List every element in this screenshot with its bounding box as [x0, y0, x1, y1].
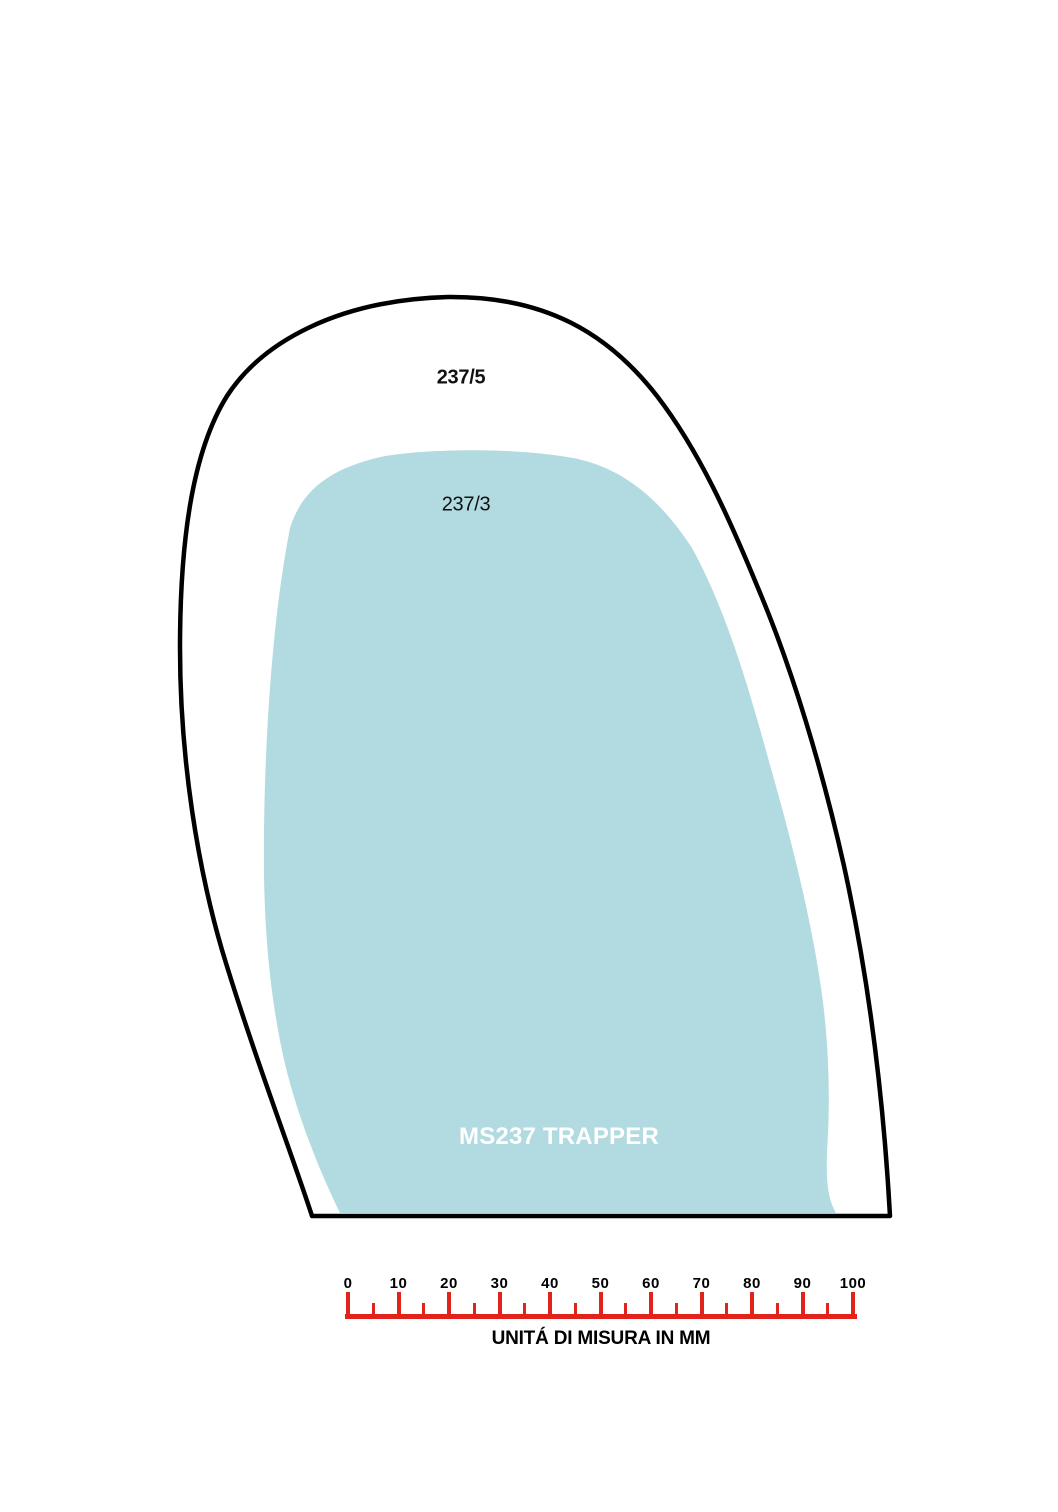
ruler-number: 40	[541, 1275, 559, 1292]
ruler-minor-tick	[422, 1303, 425, 1317]
ruler-major-tick	[498, 1292, 502, 1317]
ruler-major-tick	[851, 1292, 855, 1317]
ruler-minor-tick	[826, 1303, 829, 1317]
outer-part-label: 237/5	[437, 367, 486, 390]
ruler-number: 20	[440, 1275, 458, 1292]
ruler-major-tick	[447, 1292, 451, 1317]
ruler-major-tick	[548, 1292, 552, 1317]
ruler-labels: 0102030405060708090100	[348, 1272, 854, 1293]
inner-part-label: 237/3	[442, 494, 491, 517]
ruler-major-tick	[649, 1292, 653, 1317]
ruler-number: 0	[344, 1275, 353, 1292]
model-name-label: MS237 TRAPPER	[459, 1123, 659, 1151]
mm-ruler: 0102030405060708090100 UNITÁ DI MISURA I…	[348, 1272, 854, 1350]
ruler-number: 90	[794, 1275, 812, 1292]
ruler-major-tick	[801, 1292, 805, 1317]
ruler-number: 10	[390, 1275, 408, 1292]
ruler-number: 70	[693, 1275, 711, 1292]
ruler-ticks	[348, 1293, 854, 1319]
ruler-number: 60	[642, 1275, 660, 1292]
ruler-major-tick	[346, 1292, 350, 1317]
ruler-minor-tick	[725, 1303, 728, 1317]
ruler-minor-tick	[624, 1303, 627, 1317]
ruler-minor-tick	[675, 1303, 678, 1317]
ruler-number: 30	[491, 1275, 509, 1292]
ruler-major-tick	[750, 1292, 754, 1317]
ruler-minor-tick	[372, 1303, 375, 1317]
ruler-minor-tick	[523, 1303, 526, 1317]
ruler-major-tick	[599, 1292, 603, 1317]
sole-pattern-diagram: 237/5 237/3 MS237 TRAPPER 01020304050607…	[0, 0, 1058, 1512]
ruler-minor-tick	[473, 1303, 476, 1317]
ruler-major-tick	[700, 1292, 704, 1317]
ruler-caption: UNITÁ DI MISURA IN MM	[348, 1328, 854, 1350]
ruler-number: 100	[840, 1275, 867, 1292]
ruler-minor-tick	[776, 1303, 779, 1317]
ruler-number: 50	[592, 1275, 610, 1292]
ruler-major-tick	[397, 1292, 401, 1317]
ruler-number: 80	[743, 1275, 761, 1292]
ruler-minor-tick	[574, 1303, 577, 1317]
